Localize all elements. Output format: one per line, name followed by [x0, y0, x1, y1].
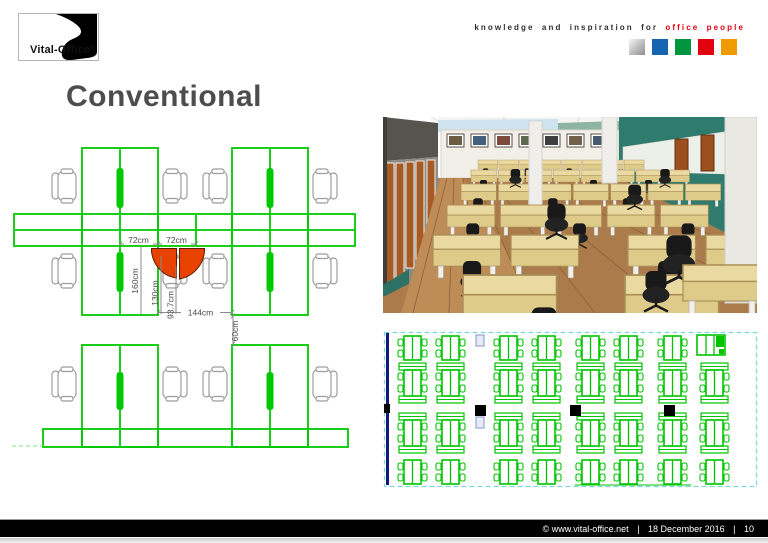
vital-office-logo: Vital-Office® — [18, 13, 99, 61]
page-title: Conventional — [66, 80, 262, 114]
plan-wall-post — [384, 404, 390, 413]
color-square-blue — [652, 39, 668, 55]
plan-door — [476, 417, 484, 428]
brand-color-squares — [629, 39, 737, 55]
footer-strip — [0, 538, 768, 543]
tagline: knowledge and inspiration for office peo… — [474, 23, 745, 32]
plan-printer-station — [697, 335, 725, 355]
office-3d-render — [383, 117, 757, 313]
plan-door — [476, 335, 484, 346]
slide: Vital-Office® knowledge and inspiration … — [0, 0, 768, 543]
tagline-prefix: knowledge and inspiration for — [474, 23, 658, 32]
footer-separator: | — [637, 524, 639, 534]
color-square-red — [698, 39, 714, 55]
cad-desk-drawing: 72cm 72cm 160cm 130cm 93.7cm 144cm 60cm — [10, 140, 360, 485]
footer-page-number: 10 — [744, 524, 754, 534]
picture-frames — [447, 134, 608, 147]
dim-60: 60cm — [230, 321, 240, 342]
color-square-green — [675, 39, 691, 55]
door — [701, 135, 714, 171]
column — [529, 121, 542, 215]
cad-chairs-lower — [52, 367, 337, 401]
dim-130: 130cm — [150, 280, 160, 306]
logo-brand-text: Vital-Office® — [30, 44, 95, 56]
footer-copyright: © www.vital-office.net — [543, 524, 629, 534]
plan-column — [475, 405, 486, 416]
office-floor-plan — [383, 331, 758, 488]
dim-72-left: 72cm — [128, 235, 149, 245]
door — [675, 139, 688, 171]
logo-brand: Vital-Office — [30, 44, 90, 56]
color-square-silver — [629, 39, 645, 55]
color-square-orange — [721, 39, 737, 55]
dim-93: 93.7cm — [166, 291, 176, 319]
footer-date: 18 December 2016 — [648, 524, 725, 534]
dim-72-right: 72cm — [166, 235, 187, 245]
registered-mark: ® — [90, 44, 95, 50]
column — [602, 117, 617, 183]
tagline-highlight: office people — [665, 23, 745, 32]
footer-bar: © www.vital-office.net | 18 December 201… — [0, 519, 768, 537]
plan-column — [664, 405, 675, 416]
dim-144: 144cm — [188, 308, 214, 318]
cad-desk-screens — [117, 168, 274, 410]
plan-column — [570, 405, 581, 416]
footer-separator: | — [733, 524, 735, 534]
dim-160: 160cm — [130, 268, 140, 294]
